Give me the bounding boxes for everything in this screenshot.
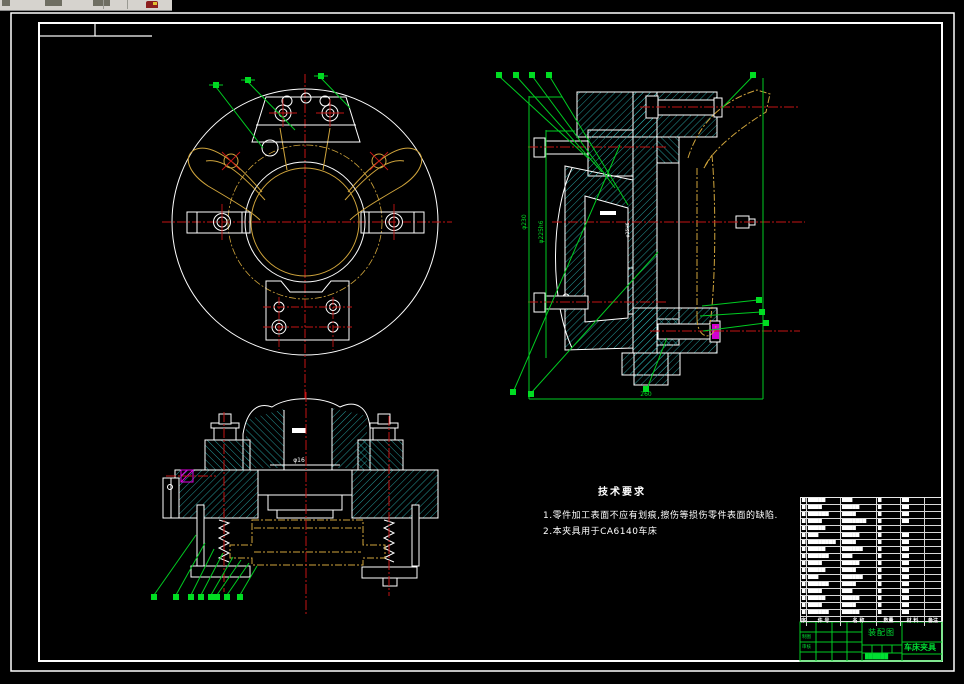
parts-list-row: █ ████ ████ █ ██: [801, 603, 941, 610]
parts-list: █ █████ ███ █ ██ █ ████ █████ █ ██: [800, 497, 942, 622]
parts-list-row: █ ██████ ███ █ ██: [801, 554, 941, 561]
dim-bore-dia: φ16: [293, 457, 305, 464]
dim-overall-width: 260: [640, 391, 652, 398]
tech-requirement-item: 2.本夹具用于CA6140车床: [543, 524, 657, 537]
parts-list-row: █ ███ ██████ █ ██: [801, 575, 941, 582]
parts-list-row: █ ████ █████ █ ██: [801, 561, 941, 568]
section-view-right[interactable]: φ230 φ225h6 260 φ25H6: [496, 72, 805, 399]
parts-list-row: █ ██████ █████ █ ██: [801, 610, 941, 617]
item-balloons: [209, 73, 328, 88]
sheet-corner-box: [39, 23, 95, 36]
parts-list-row: █ ████ █████ █ ██: [801, 505, 941, 512]
bracket-centerlines: [263, 297, 352, 350]
parts-list-row: █ ██████ ████ █ ██: [801, 582, 941, 589]
parts-list-row: █ ████ ███████ █ ██: [801, 519, 941, 526]
bottom-leaders: [154, 535, 257, 595]
bottom-bracket: [266, 281, 349, 340]
doc-number: ██████: [865, 654, 888, 660]
cad-application-window: φ230 φ225h6 260 φ25H6: [0, 0, 964, 684]
parts-list-row: █ █████ ██████ █ ██: [801, 547, 941, 554]
title-block-label: 制图: [802, 634, 811, 640]
section-view-bottom[interactable]: φ16: [151, 392, 438, 614]
dim-outer-dia: φ230: [521, 214, 528, 230]
parts-list-row: █ ████ ███ █ ██: [801, 589, 941, 596]
lower-workpiece-phantom: [230, 520, 385, 565]
parts-list-row: █ █████ █████ █ ██: [801, 596, 941, 603]
bottom-balloons: [151, 594, 243, 600]
parts-list-row: █ ██████ ████ █ ██: [801, 512, 941, 519]
parts-list-row: █ █████ ████ █: [801, 526, 941, 533]
parts-list-rows: █ █████ ███ █ ██ █ ████ █████ █ ██: [801, 498, 941, 617]
dim-fit-dia: φ225h6: [538, 220, 545, 243]
drawing-name: 装配图: [868, 627, 895, 638]
plan-centerlines: [162, 74, 452, 402]
dim-pilot-dia: φ25H6: [625, 222, 631, 237]
parts-list-row: █ █████ ███ █ ██: [801, 498, 941, 505]
parts-list-row: █ █████ ████ █ ██: [801, 568, 941, 575]
tech-requirements-title: 技术要求: [598, 483, 646, 498]
parts-list-row: █ ████████ ████ █ ██: [801, 540, 941, 547]
project-name: 车床夹具: [904, 642, 936, 653]
tech-requirement-item: 1.零件加工表面不应有划痕,擦伤等损伤零件表面的缺陷.: [543, 508, 778, 521]
plan-view[interactable]: [162, 73, 452, 402]
parts-list-row: █ ███ █████ █ ██: [801, 533, 941, 540]
parts-list-header: 序 件 号 名 称 数量 材 料 备注: [801, 617, 941, 626]
title-block-label: 审核: [802, 644, 811, 650]
